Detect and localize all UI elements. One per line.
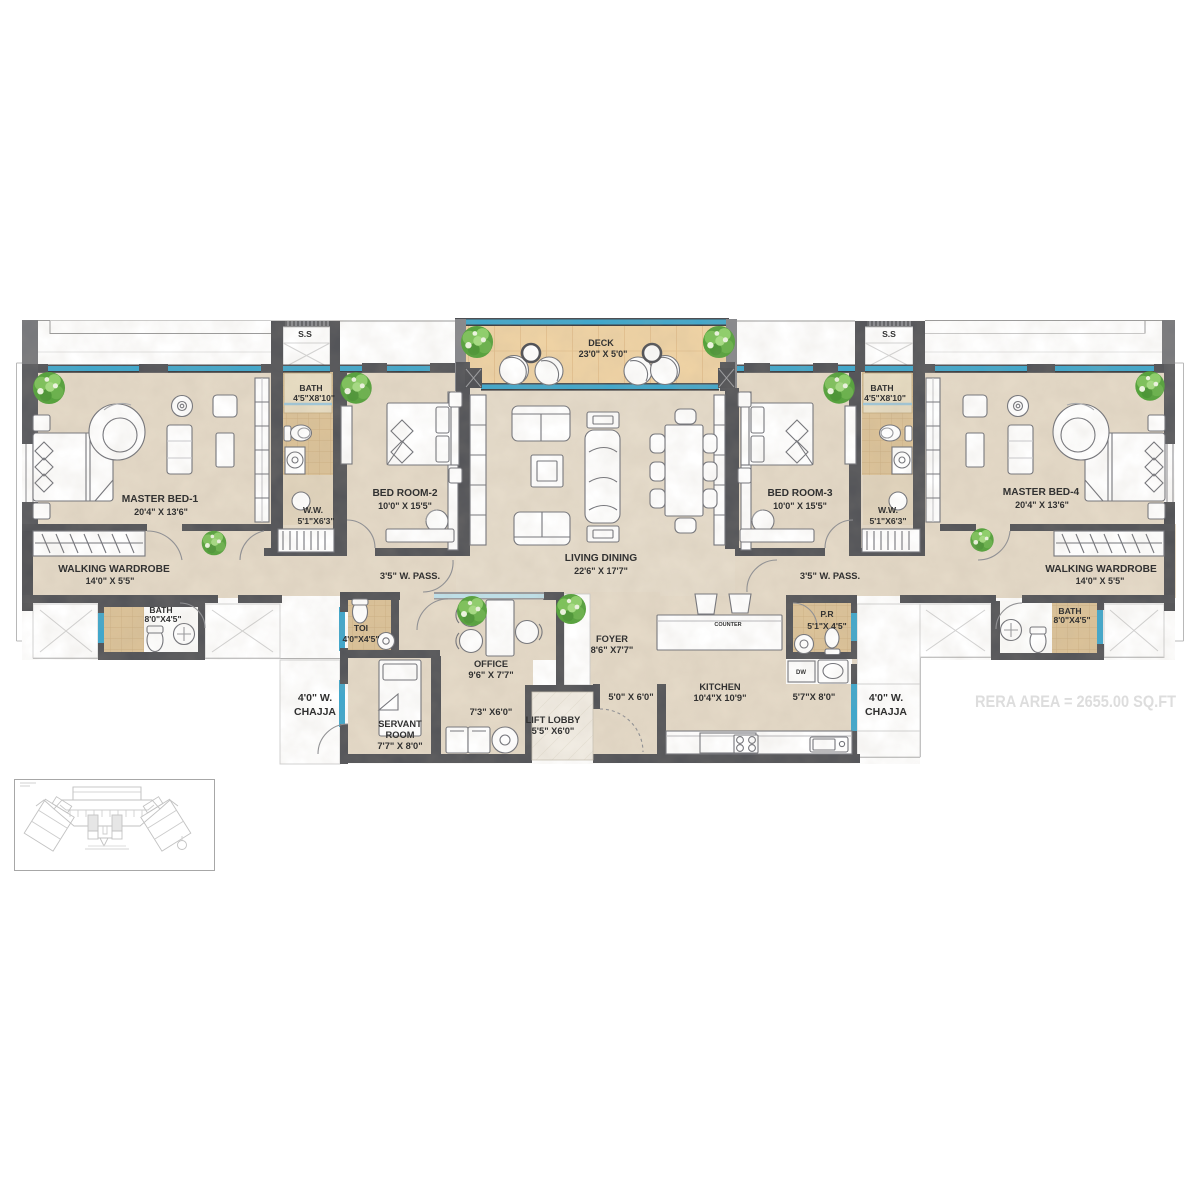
svg-text:5'1"X 4'5": 5'1"X 4'5" [807, 621, 846, 631]
svg-text:10'0" X 15'5": 10'0" X 15'5" [773, 501, 827, 511]
svg-text:BATH: BATH [299, 383, 322, 393]
svg-text:KITCHEN: KITCHEN [699, 682, 741, 692]
svg-text:4'0"X4'5": 4'0"X4'5" [342, 634, 379, 644]
svg-text:LIFT LOBBY: LIFT LOBBY [526, 715, 582, 725]
svg-text:BED ROOM-3: BED ROOM-3 [767, 488, 832, 499]
svg-text:20'4" X 13'6": 20'4" X 13'6" [1015, 500, 1069, 510]
svg-text:MASTER BED-4: MASTER BED-4 [1003, 487, 1080, 498]
svg-text:DECK: DECK [588, 338, 614, 348]
svg-text:P.R: P.R [820, 609, 834, 619]
svg-text:FOYER: FOYER [596, 634, 628, 644]
svg-text:4'0" W.: 4'0" W. [869, 692, 903, 704]
svg-text:7'7" X 8'0": 7'7" X 8'0" [377, 741, 422, 751]
svg-text:4'5"X8'10": 4'5"X8'10" [864, 393, 906, 403]
svg-text:BED ROOM-2: BED ROOM-2 [372, 488, 437, 499]
svg-text:22'6" X 17'7": 22'6" X 17'7" [574, 566, 628, 576]
svg-text:WALKING WARDROBE: WALKING WARDROBE [1045, 564, 1157, 575]
svg-text:3'5" W. PASS.: 3'5" W. PASS. [800, 571, 860, 581]
svg-text:WALKING WARDROBE: WALKING WARDROBE [58, 564, 170, 575]
svg-text:14'0" X 5'5": 14'0" X 5'5" [86, 576, 135, 586]
svg-text:5'1"X6'3": 5'1"X6'3" [297, 516, 334, 526]
svg-text:OFFICE: OFFICE [474, 659, 508, 669]
svg-text:LIVING DINING: LIVING DINING [565, 553, 638, 564]
svg-text:5'7"X 8'0": 5'7"X 8'0" [793, 692, 836, 702]
svg-text:5'1"X6'3": 5'1"X6'3" [869, 516, 906, 526]
svg-text:8'0"X4'5": 8'0"X4'5" [144, 614, 181, 624]
svg-text:CHAJJA: CHAJJA [865, 706, 907, 718]
svg-text:W.W.: W.W. [878, 505, 898, 515]
svg-text:7'3" X6'0": 7'3" X6'0" [470, 707, 513, 717]
svg-text:RERA AREA = 2655.00 SQ.FT: RERA AREA = 2655.00 SQ.FT [975, 692, 1177, 711]
svg-text:BATH: BATH [870, 383, 893, 393]
svg-text:MASTER BED-1: MASTER BED-1 [122, 494, 199, 505]
svg-text:S.S: S.S [298, 329, 312, 339]
svg-text:SERVANT: SERVANT [378, 719, 422, 729]
svg-text:TOI: TOI [354, 623, 368, 633]
svg-text:4'5"X8'10": 4'5"X8'10" [293, 393, 335, 403]
svg-text:COUNTER: COUNTER [714, 622, 741, 628]
svg-text:ROOM: ROOM [386, 730, 415, 740]
svg-text:10'0" X 15'5": 10'0" X 15'5" [378, 501, 432, 511]
svg-text:8'0"X4'5": 8'0"X4'5" [1053, 615, 1090, 625]
svg-text:S.S: S.S [882, 329, 896, 339]
svg-text:9'6" X 7'7": 9'6" X 7'7" [468, 670, 513, 680]
svg-text:20'4" X 13'6": 20'4" X 13'6" [134, 507, 188, 517]
svg-text:10'4"X 10'9": 10'4"X 10'9" [693, 693, 746, 703]
svg-text:8'6" X7'7": 8'6" X7'7" [591, 645, 634, 655]
svg-text:3'5" W. PASS.: 3'5" W. PASS. [380, 571, 440, 581]
svg-text:4'0" W.: 4'0" W. [298, 692, 332, 704]
svg-text:CHAJJA: CHAJJA [294, 706, 336, 718]
svg-text:5'0" X 6'0": 5'0" X 6'0" [608, 692, 653, 702]
svg-text:5'5" X6'0": 5'5" X6'0" [532, 726, 575, 736]
svg-text:W.W.: W.W. [303, 505, 323, 515]
svg-text:23'0" X 5'0": 23'0" X 5'0" [579, 349, 628, 359]
svg-text:14'0" X 5'5": 14'0" X 5'5" [1076, 576, 1125, 586]
